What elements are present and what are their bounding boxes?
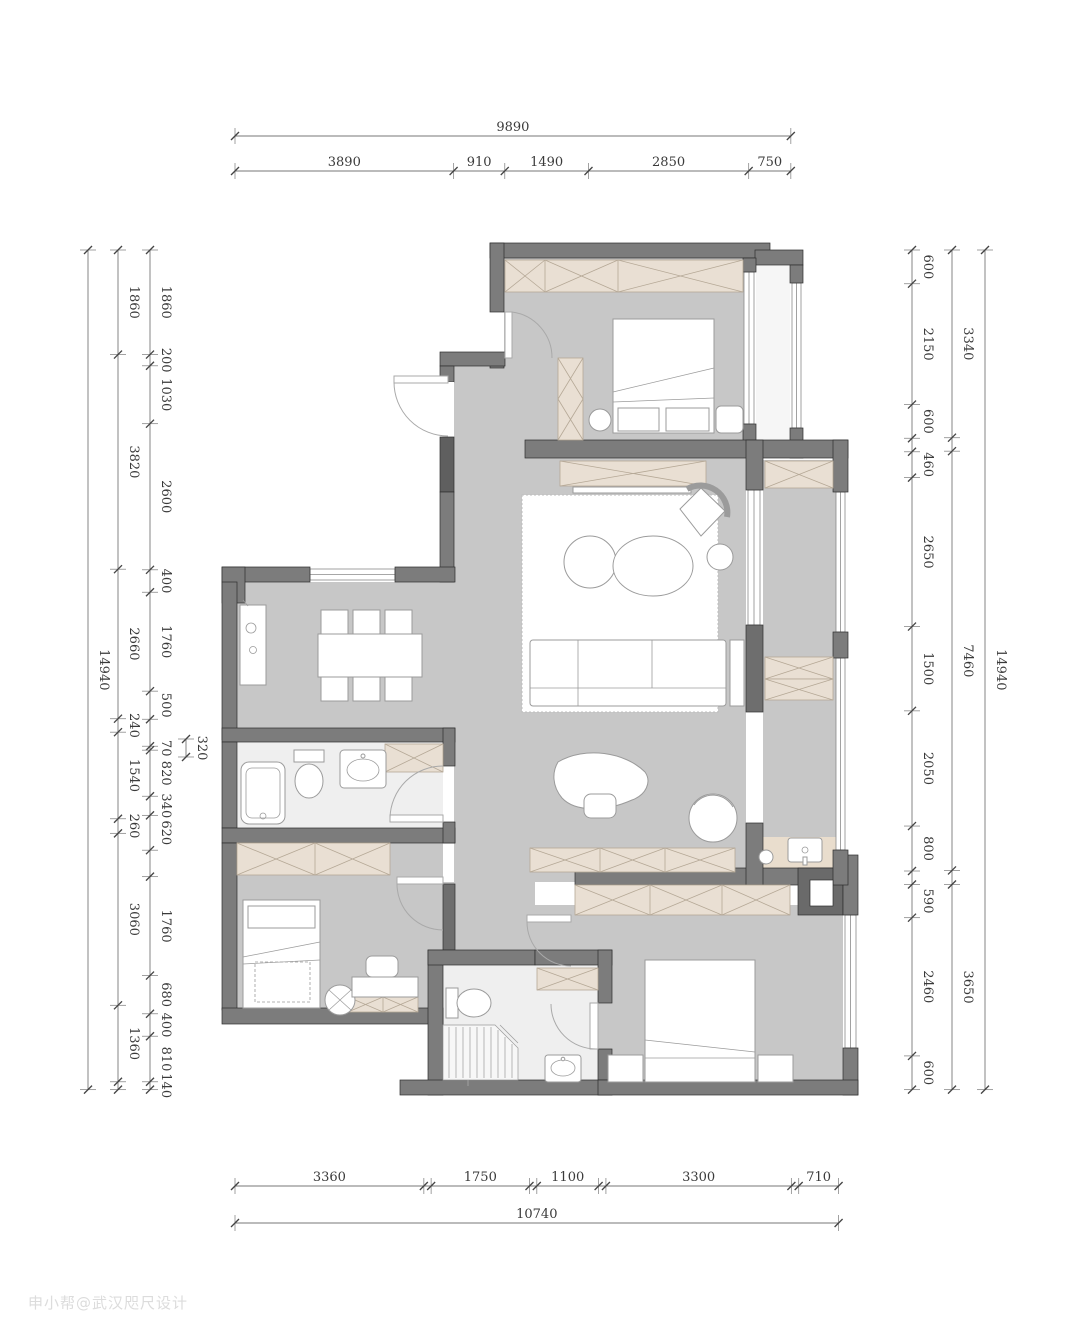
dim-label: 1860 [158,286,173,319]
dim-label: 2050 [920,752,935,785]
dim-chain-right-overall: 14940 [977,246,1008,1094]
cabinet-balcony2-mid [765,657,833,700]
wardrobe-master-top [575,885,790,915]
dim-chain-top-segments: 389091014902850750 [231,155,795,179]
dim-label: 1360 [126,1027,141,1060]
nightstand-square [716,406,743,433]
window-balcony1-right [792,283,801,428]
dim-chain-left-overall: 14940 [80,246,111,1094]
watermark: 申小帮@武汉咫尺设计 [28,1292,188,1313]
sink-1 [340,750,386,788]
dim-label: 600 [920,1060,935,1085]
sink-2 [545,1055,581,1082]
dim-label: 2150 [920,328,935,361]
dim-label: 500 [158,693,173,718]
dim-label: 620 [158,820,173,845]
nightstand-round [589,409,611,431]
dim-label: 3820 [126,445,141,478]
cabinet-study-bottom [530,848,735,872]
bed-master [645,960,755,1082]
dim-label: 3890 [328,155,361,170]
dim-label: 600 [920,409,935,434]
dim-label: 260 [126,814,141,839]
dim-chain-left-inner: 1860200103026004001760500708203406201760… [142,246,173,1098]
dim-label: 820 [158,761,173,786]
dim-label: 70 [158,740,173,757]
dim-label: 590 [920,889,935,914]
dim-label: 2460 [920,970,935,1003]
dim-label: 400 [158,1013,173,1038]
window-living-balcony2 [748,490,760,625]
dim-chain-bottom-overall: 10740 [231,1207,843,1231]
dim-label: 1860 [126,286,141,319]
dim-label: 910 [467,155,492,170]
dim-chain-left-niche: 320 [178,735,209,761]
bed-bedroom2 [243,900,320,1008]
dim-label: 800 [920,836,935,861]
coffee-table-oval [613,536,693,596]
dim-label: 200 [158,348,173,373]
dim-label: 7460 [960,644,975,677]
window-bedroom1-balcony [744,272,754,424]
dim-label: 2850 [652,155,685,170]
window-balcony2-right-a [836,492,845,632]
dim-label: 1750 [464,1170,497,1185]
dim-label: 1760 [158,910,173,943]
round-chair [689,794,737,842]
tv [573,487,691,493]
dim-label: 10740 [516,1207,557,1222]
window-balcony2-right-b [836,658,845,850]
dim-label: 1030 [158,378,173,411]
window-dining-top [310,569,395,580]
bathtub [241,762,285,824]
floorplan-page: 9890389091014902850750336017501100330071… [0,0,1080,1340]
nightstand-master-left [608,1055,643,1082]
coffee-table-round [564,536,616,588]
dim-label: 1760 [158,625,173,658]
dim-label: 680 [158,982,173,1007]
chair-bedroom2 [366,956,398,977]
floorplan-drawing: 9890389091014902850750336017501100330071… [0,0,1080,1340]
window-master-right [845,915,856,1048]
cabinet-bedroom2-desk [348,997,418,1012]
cabinet-balcony2-top [765,461,833,488]
dim-chain-bottom-segments: 3360175011003300710 [231,1170,843,1194]
dim-label: 340 [158,793,173,818]
balcony-1-floor [756,265,790,440]
console-balcony2 [730,640,744,706]
dim-label: 400 [158,569,173,594]
dim-label: 3060 [126,903,141,936]
dim-label: 2650 [920,536,935,569]
dining-set [318,610,422,701]
dim-label: 1500 [920,652,935,685]
sideboard [240,600,266,685]
dim-label: 2600 [158,480,173,513]
nightstand-master-right [758,1055,793,1082]
dim-label: 1540 [126,759,141,792]
dim-chain-top-overall: 9890 [231,120,795,144]
dim-label: 14940 [993,649,1008,690]
dim-label: 1100 [551,1170,584,1185]
dim-label: 460 [920,452,935,477]
tv-cabinet [560,461,706,486]
vanity-basin [788,838,822,865]
dim-label: 810 [158,1047,173,1072]
dim-label: 1490 [530,155,563,170]
dim-chain-right-outer: 334074603650 [944,246,975,1094]
dim-label: 3300 [682,1170,715,1185]
wardrobe-bedroom2-top [237,843,390,875]
dim-label: 600 [920,254,935,279]
side-table [707,544,733,570]
sofa [530,640,726,706]
dim-chain-left-outer: 186038202660240154026030601360 [110,246,141,1094]
dim-label: 320 [194,736,209,761]
toilet-1 [294,750,324,798]
stool-bedroom2 [325,985,355,1015]
dim-label: 14940 [96,649,111,690]
dim-label: 3340 [960,327,975,360]
entry-door [394,376,454,436]
vanity-stool [759,850,773,864]
dim-label: 3650 [960,971,975,1004]
dim-label: 750 [757,155,782,170]
wardrobe-bedroom1-top [505,260,743,292]
bed-bedroom1 [613,319,714,433]
dim-chain-right-inner: 60021506004602650150020508005902460600 [904,246,935,1094]
dim-label: 3360 [313,1170,346,1185]
cabinet-bathroom2-niche [537,968,598,990]
dim-label: 710 [806,1170,831,1185]
dim-label: 2660 [126,627,141,660]
dim-label: 240 [126,713,141,738]
dim-label: 9890 [496,120,529,135]
wardrobe-bedroom1-side [558,358,583,440]
dim-label: 140 [158,1073,173,1098]
cabinet-bathroom1 [385,744,443,772]
toilet-2 [446,988,491,1018]
desk-bedroom2 [352,977,418,997]
